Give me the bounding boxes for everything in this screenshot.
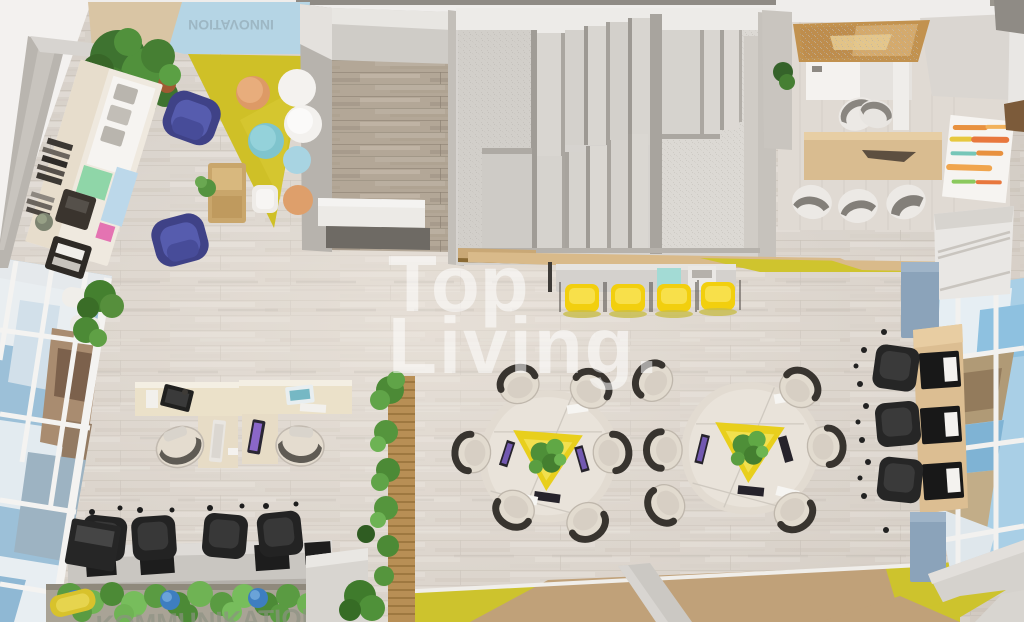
- svg-text:INNOVATION: INNOVATION: [188, 17, 274, 33]
- svg-text:Living.: Living.: [388, 301, 660, 390]
